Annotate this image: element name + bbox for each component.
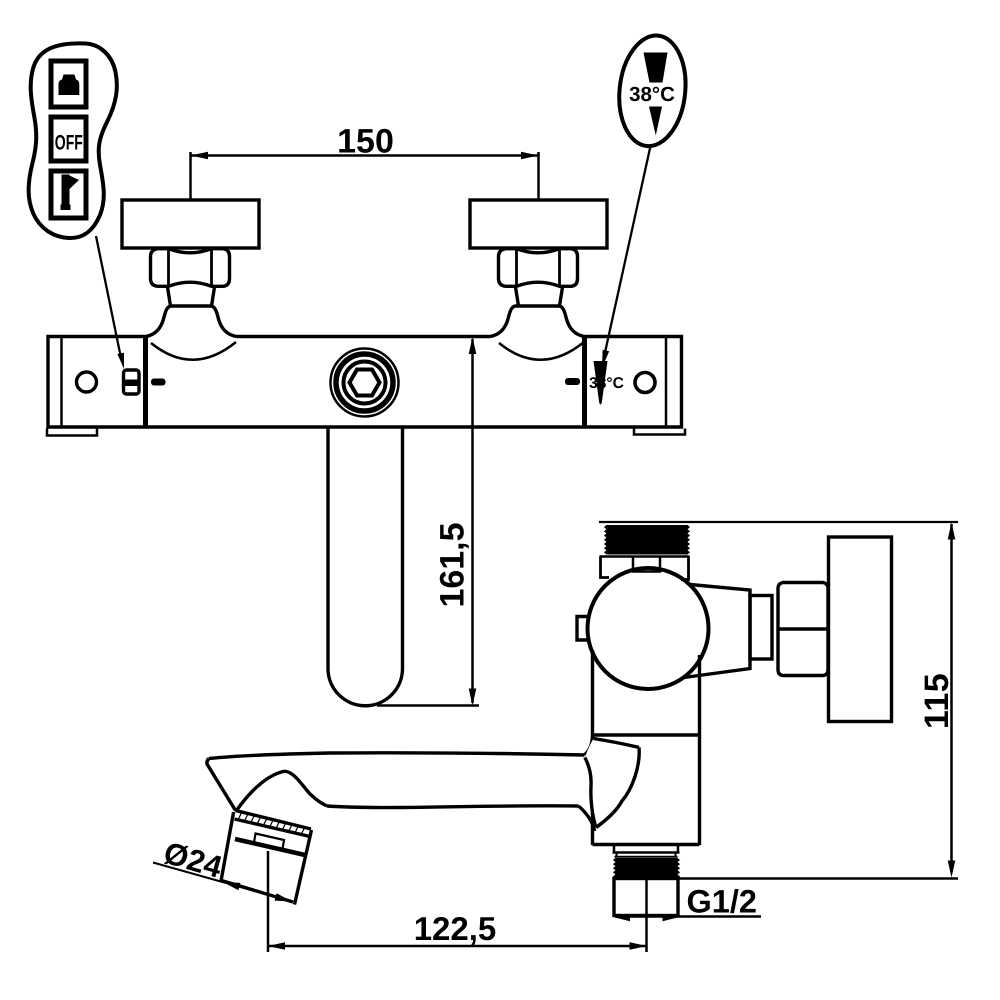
svg-text:115: 115 xyxy=(918,673,956,729)
svg-text:G1/2: G1/2 xyxy=(687,884,757,920)
svg-text:161,5: 161,5 xyxy=(434,522,472,607)
svg-text:38°C: 38°C xyxy=(589,375,624,392)
svg-text:150: 150 xyxy=(337,123,394,161)
svg-text:38°C: 38°C xyxy=(629,83,675,106)
svg-text:OFF: OFF xyxy=(55,132,83,155)
svg-text:122,5: 122,5 xyxy=(414,910,497,947)
